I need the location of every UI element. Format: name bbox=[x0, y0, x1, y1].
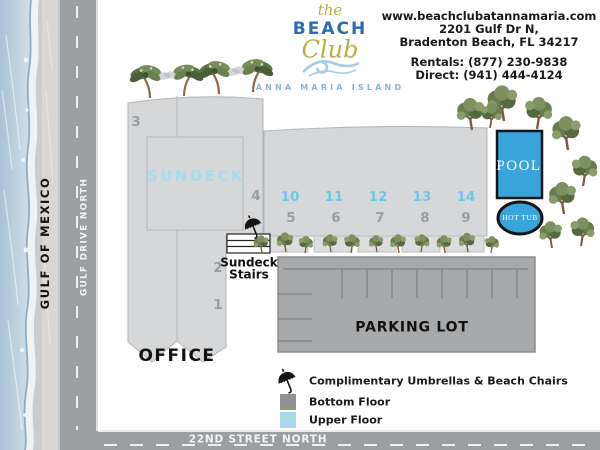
unit-3-label: 3 bbox=[131, 115, 140, 129]
tree-icon bbox=[539, 221, 562, 248]
sundeck-label: SUNDECK bbox=[147, 169, 245, 185]
parking-lot bbox=[278, 257, 535, 352]
logo-the: the bbox=[318, 3, 343, 19]
legend-bottom-floor-swatch bbox=[280, 394, 296, 410]
palm-tree-icon bbox=[128, 63, 171, 98]
unit-9-label: 9 bbox=[461, 211, 470, 225]
unit-10-label: 10 bbox=[281, 190, 300, 204]
unit-5-label: 5 bbox=[286, 211, 295, 225]
street-22nd-label: 22ND STREET NORTH bbox=[189, 434, 328, 445]
unit-12-label: 12 bbox=[369, 190, 388, 204]
palm-tree-icon bbox=[197, 59, 240, 94]
unit-4-label: 4 bbox=[251, 189, 260, 203]
parking-lot-label: PARKING LOT bbox=[355, 321, 468, 336]
contact-website: www.beachclubatannamaria.com bbox=[382, 10, 597, 22]
legend-bottom-floor-label: Bottom Floor bbox=[309, 396, 390, 409]
unit-6-label: 6 bbox=[331, 211, 340, 225]
tree-icon bbox=[552, 116, 581, 150]
unit-13-label: 13 bbox=[413, 190, 432, 204]
pool-label: POOL bbox=[496, 159, 541, 175]
tree-icon bbox=[570, 218, 594, 246]
sundeck-stairs-line2: Stairs bbox=[229, 267, 269, 281]
gulf-drive-label: GULF DRIVE NORTH bbox=[80, 178, 89, 296]
sundeck-stairs-label: Sundeck Stairs bbox=[220, 258, 278, 281]
unit-14-label: 14 bbox=[457, 190, 476, 204]
legend-umbrellas-label: Complimentary Umbrellas & Beach Chairs bbox=[309, 375, 568, 388]
contact-direct-phone: Direct: (941) 444-4124 bbox=[415, 69, 562, 81]
unit-11-label: 11 bbox=[325, 190, 344, 204]
unit-7-label: 7 bbox=[375, 211, 384, 225]
tree-icon bbox=[549, 182, 576, 214]
logo-club: Club bbox=[302, 37, 359, 62]
palm-trees-roof bbox=[128, 57, 275, 98]
beach-club-site-map: GULF OF MEXICO GULF DRIVE NORTH 22ND STR… bbox=[0, 0, 600, 450]
palm-tree-icon bbox=[164, 63, 205, 96]
contact-address-line1: 2201 Gulf Dr N, bbox=[439, 23, 539, 35]
legend-upper-floor-swatch bbox=[280, 412, 296, 428]
wave-icon bbox=[303, 61, 359, 76]
logo-tagline: ANNA MARIA ISLAND bbox=[256, 84, 405, 92]
gulf-of-mexico-label: GULF OF MEXICO bbox=[39, 177, 51, 310]
legend-umbrella-icon bbox=[274, 366, 300, 396]
legend-upper-floor-label: Upper Floor bbox=[309, 414, 382, 427]
tree-icon bbox=[572, 156, 598, 186]
contact-address-line2: Bradenton Beach, FL 34217 bbox=[400, 36, 579, 48]
contact-rentals-phone: Rentals: (877) 230-9838 bbox=[411, 56, 568, 68]
tree-icon bbox=[525, 97, 552, 129]
unit-8-label: 8 bbox=[420, 211, 429, 225]
office-label: OFFICE bbox=[138, 348, 215, 366]
tree-icon bbox=[457, 98, 484, 130]
bush-icon bbox=[485, 236, 499, 253]
hot-tub-label: HOT TUB bbox=[502, 214, 538, 222]
unit-1-label: 1 bbox=[213, 298, 222, 312]
